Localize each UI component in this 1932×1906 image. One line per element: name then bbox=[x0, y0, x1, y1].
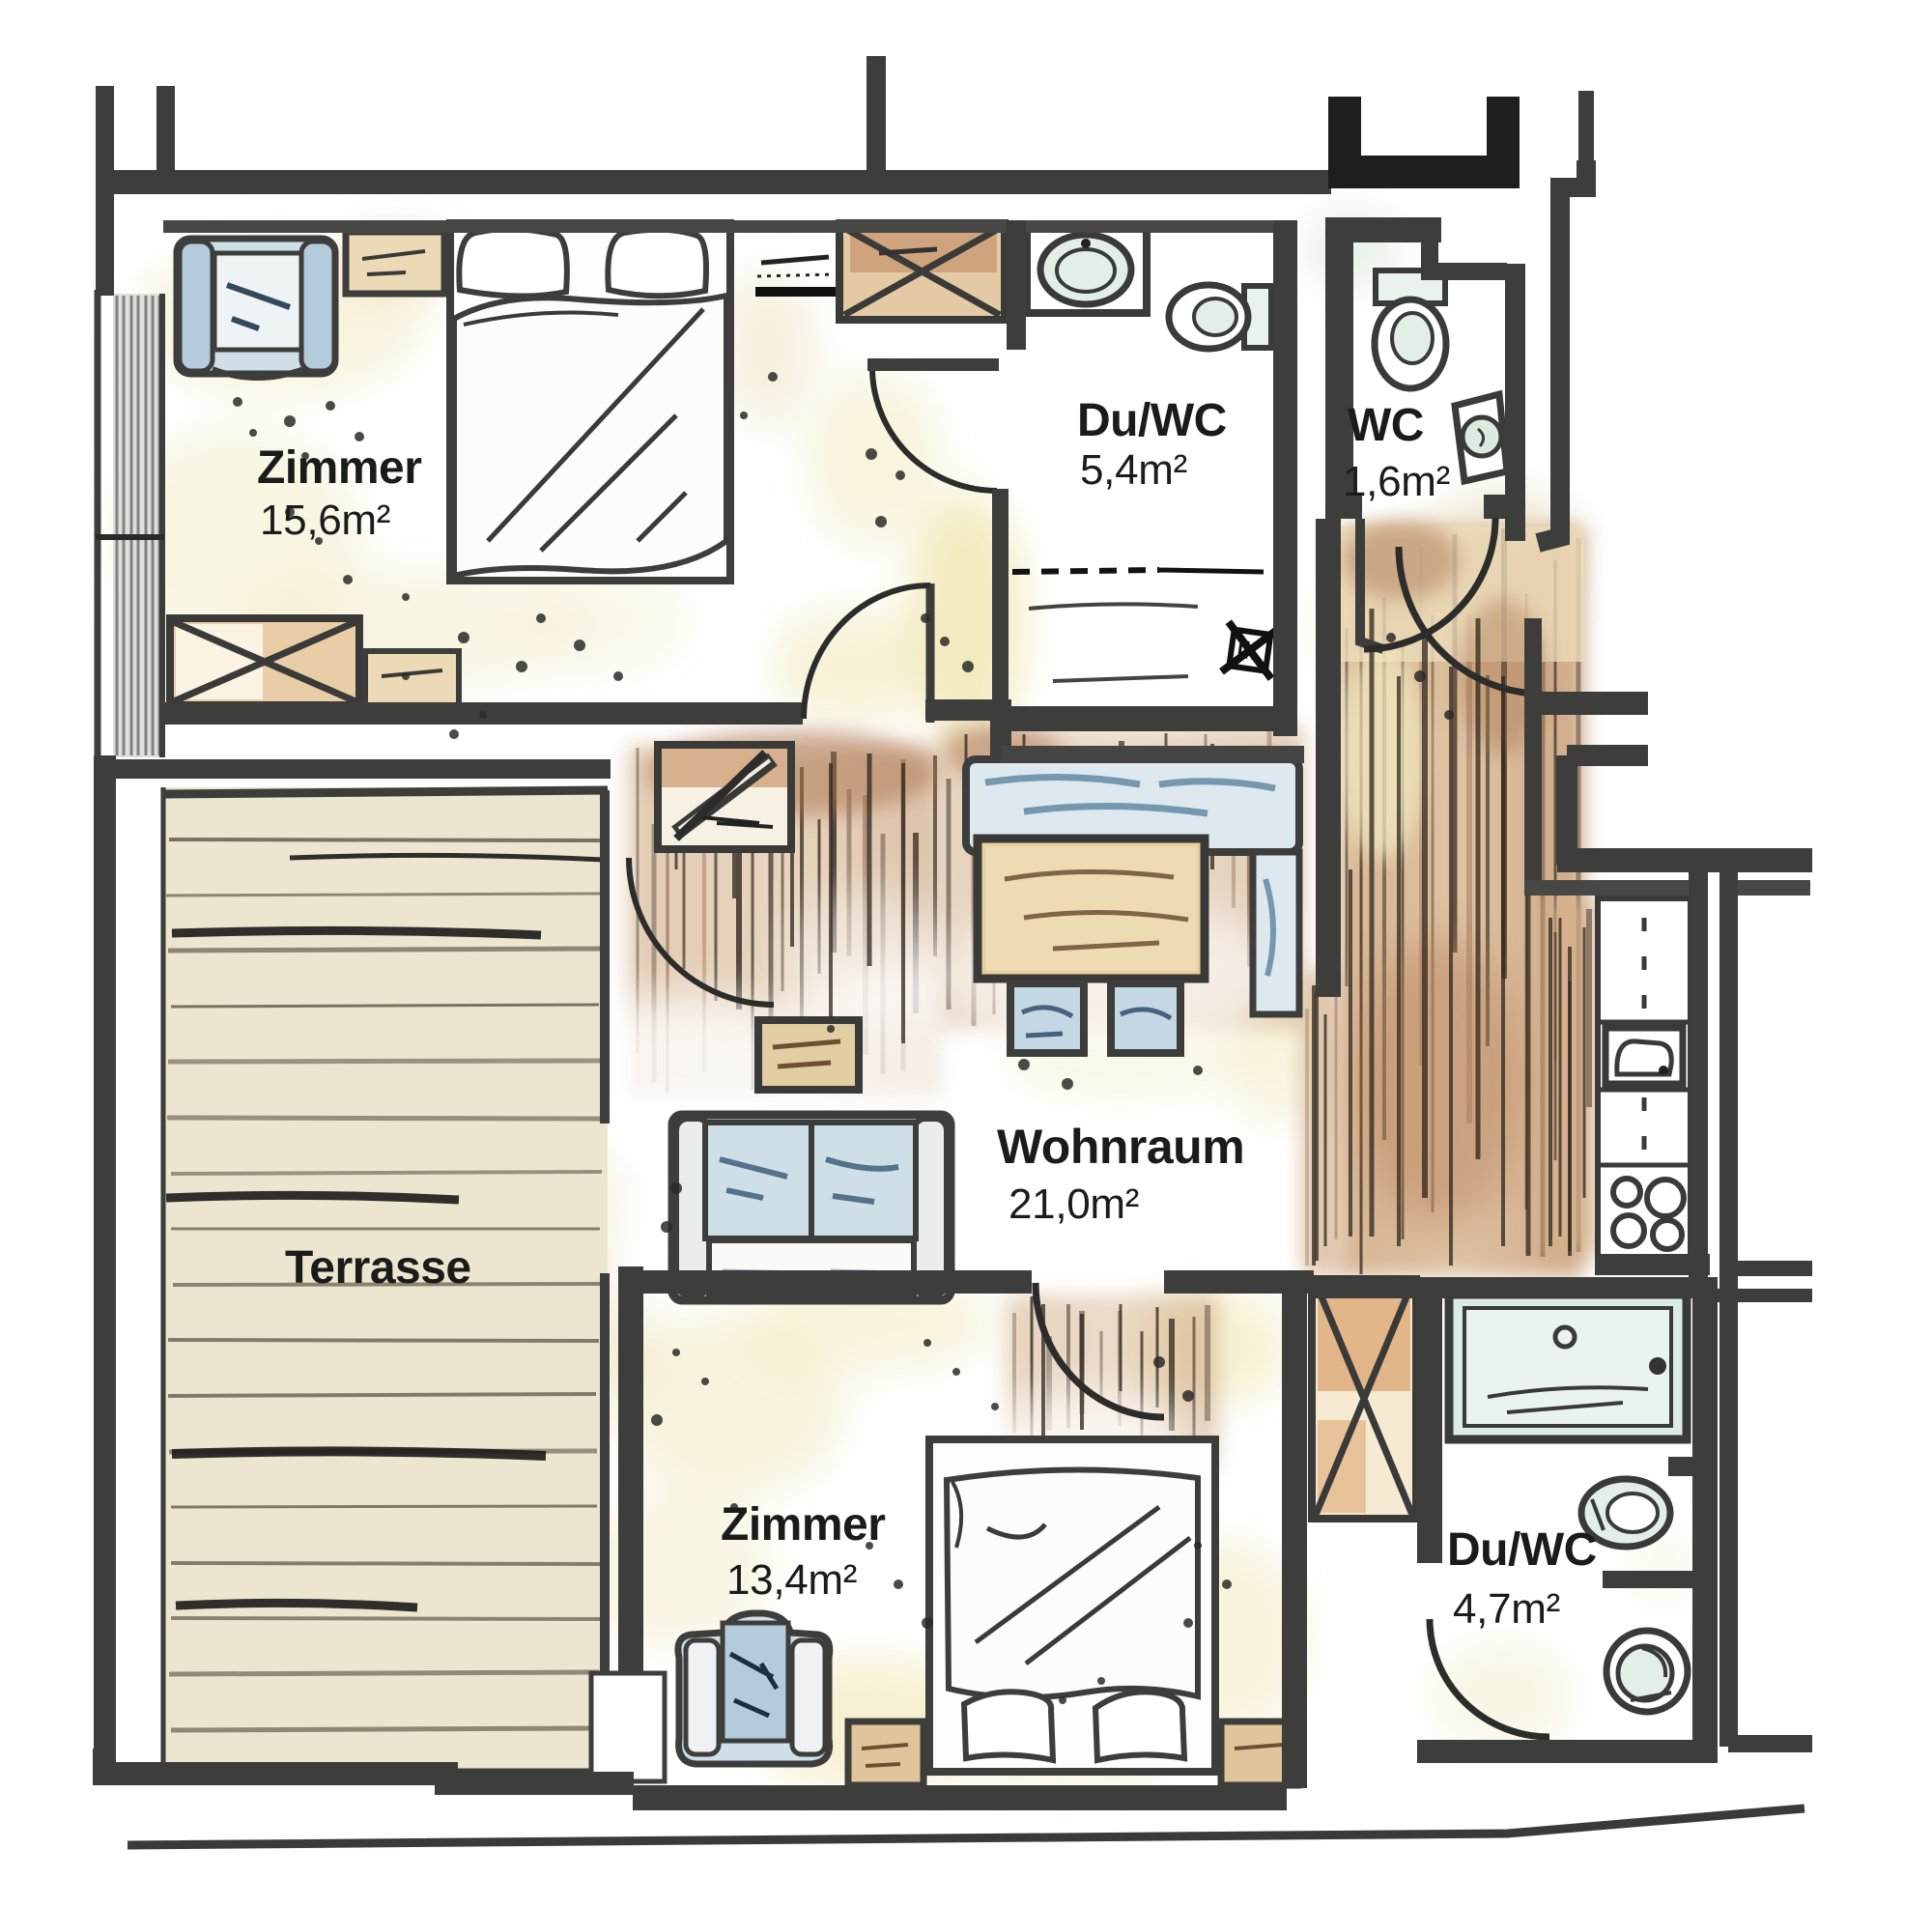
svg-text:Terrasse: Terrasse bbox=[285, 1242, 471, 1294]
svg-text:Du/WC: Du/WC bbox=[1077, 395, 1227, 446]
svg-text:21,0m²: 21,0m² bbox=[1009, 1181, 1139, 1228]
svg-text:Zimmer: Zimmer bbox=[721, 1499, 885, 1550]
svg-text:WC: WC bbox=[1348, 400, 1424, 451]
svg-text:13,4m²: 13,4m² bbox=[726, 1556, 857, 1604]
svg-text:Zimmer: Zimmer bbox=[257, 442, 421, 494]
svg-text:4,7m²: 4,7m² bbox=[1453, 1585, 1560, 1633]
svg-text:5,4m²: 5,4m² bbox=[1080, 446, 1187, 494]
svg-text:1,6m²: 1,6m² bbox=[1343, 458, 1450, 505]
svg-text:Wohnraum: Wohnraum bbox=[997, 1120, 1244, 1174]
svg-text:Du/WC: Du/WC bbox=[1447, 1524, 1597, 1576]
svg-text:15,6m²: 15,6m² bbox=[260, 497, 390, 544]
